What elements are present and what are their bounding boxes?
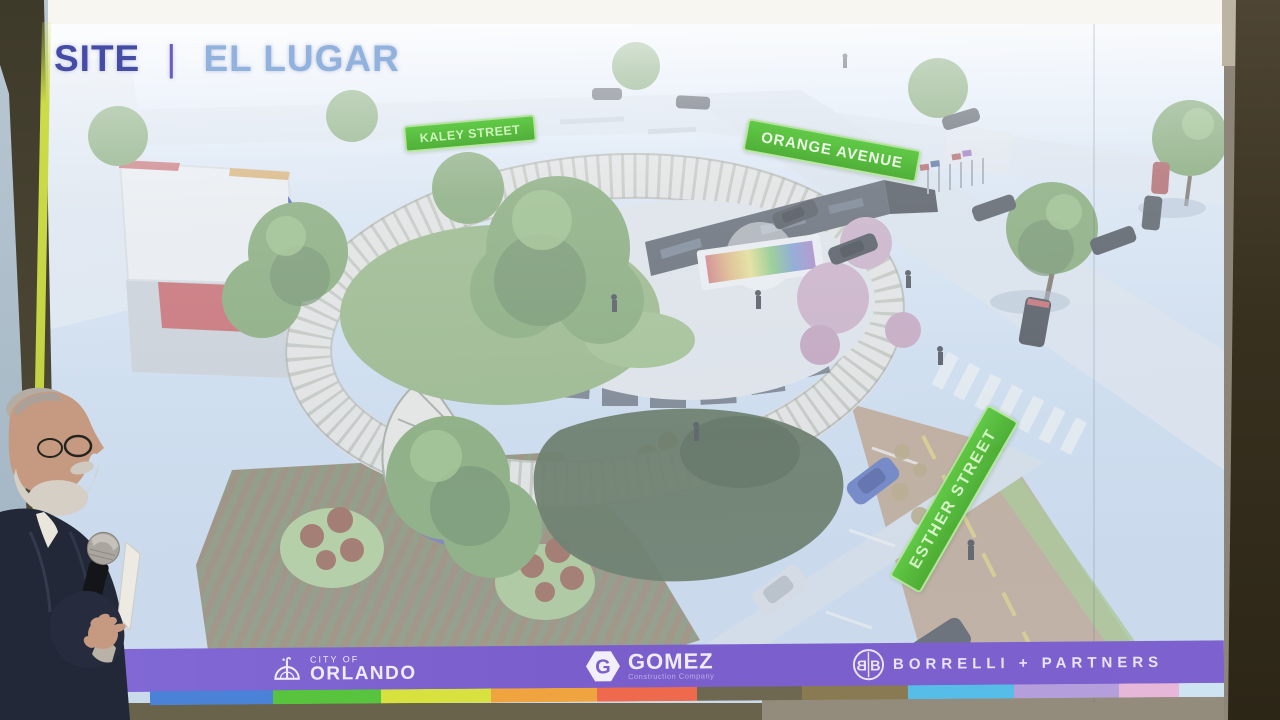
- slide-title: SITE | EL LUGAR: [54, 38, 400, 80]
- fountain-icon: [272, 652, 302, 686]
- rainbow-segment: [802, 685, 908, 700]
- gomez-name: GOMEZ: [628, 650, 714, 672]
- svg-text:G: G: [595, 656, 611, 678]
- rainbow-segment: [491, 688, 597, 703]
- city-of-orlando-logo: CITY OF ORLANDO: [272, 651, 417, 686]
- title-project-name: EL LUGAR: [203, 38, 399, 79]
- borrelli-circle-icon: B B: [852, 648, 885, 681]
- svg-text:B: B: [870, 658, 881, 674]
- rainbow-segment: [908, 684, 1014, 699]
- rainbow-segment: [150, 690, 273, 705]
- paper: [118, 542, 140, 630]
- gomez-hexagon-icon: G: [586, 649, 620, 683]
- site-render: [48, 24, 1224, 704]
- presentation-room-photo: SITE | EL LUGAR KALEY STREET ORANGE AVEN…: [0, 0, 1280, 720]
- rainbow-segment: [273, 689, 381, 704]
- borrelli-partners-logo: B B BORRELLI + PARTNERS: [852, 646, 1163, 681]
- gomez-logo: G GOMEZ Construction Company: [586, 648, 715, 683]
- rainbow-segment: [597, 687, 697, 702]
- borrelli-name: BORRELLI + PARTNERS: [893, 654, 1163, 673]
- presenter: [0, 382, 152, 720]
- rainbow-segment: [1179, 683, 1224, 697]
- orlando-line2: ORLANDO: [310, 663, 417, 683]
- rainbow-segment: [1014, 684, 1119, 699]
- rainbow-segment: [697, 686, 802, 701]
- title-separator: |: [167, 38, 178, 79]
- rainbow-segment: [1119, 683, 1179, 697]
- screen-top-margin: [48, 0, 1224, 26]
- screen-bottom-shadow: [48, 703, 762, 720]
- svg-text:B: B: [856, 659, 867, 675]
- gomez-tagline: Construction Company: [628, 671, 714, 681]
- title-section: SITE: [54, 38, 140, 79]
- screen-crease: [1093, 24, 1095, 702]
- screen-frame-right: [1222, 0, 1280, 720]
- rainbow-segment: [381, 689, 491, 704]
- screen-bottom-margin: [762, 697, 1224, 720]
